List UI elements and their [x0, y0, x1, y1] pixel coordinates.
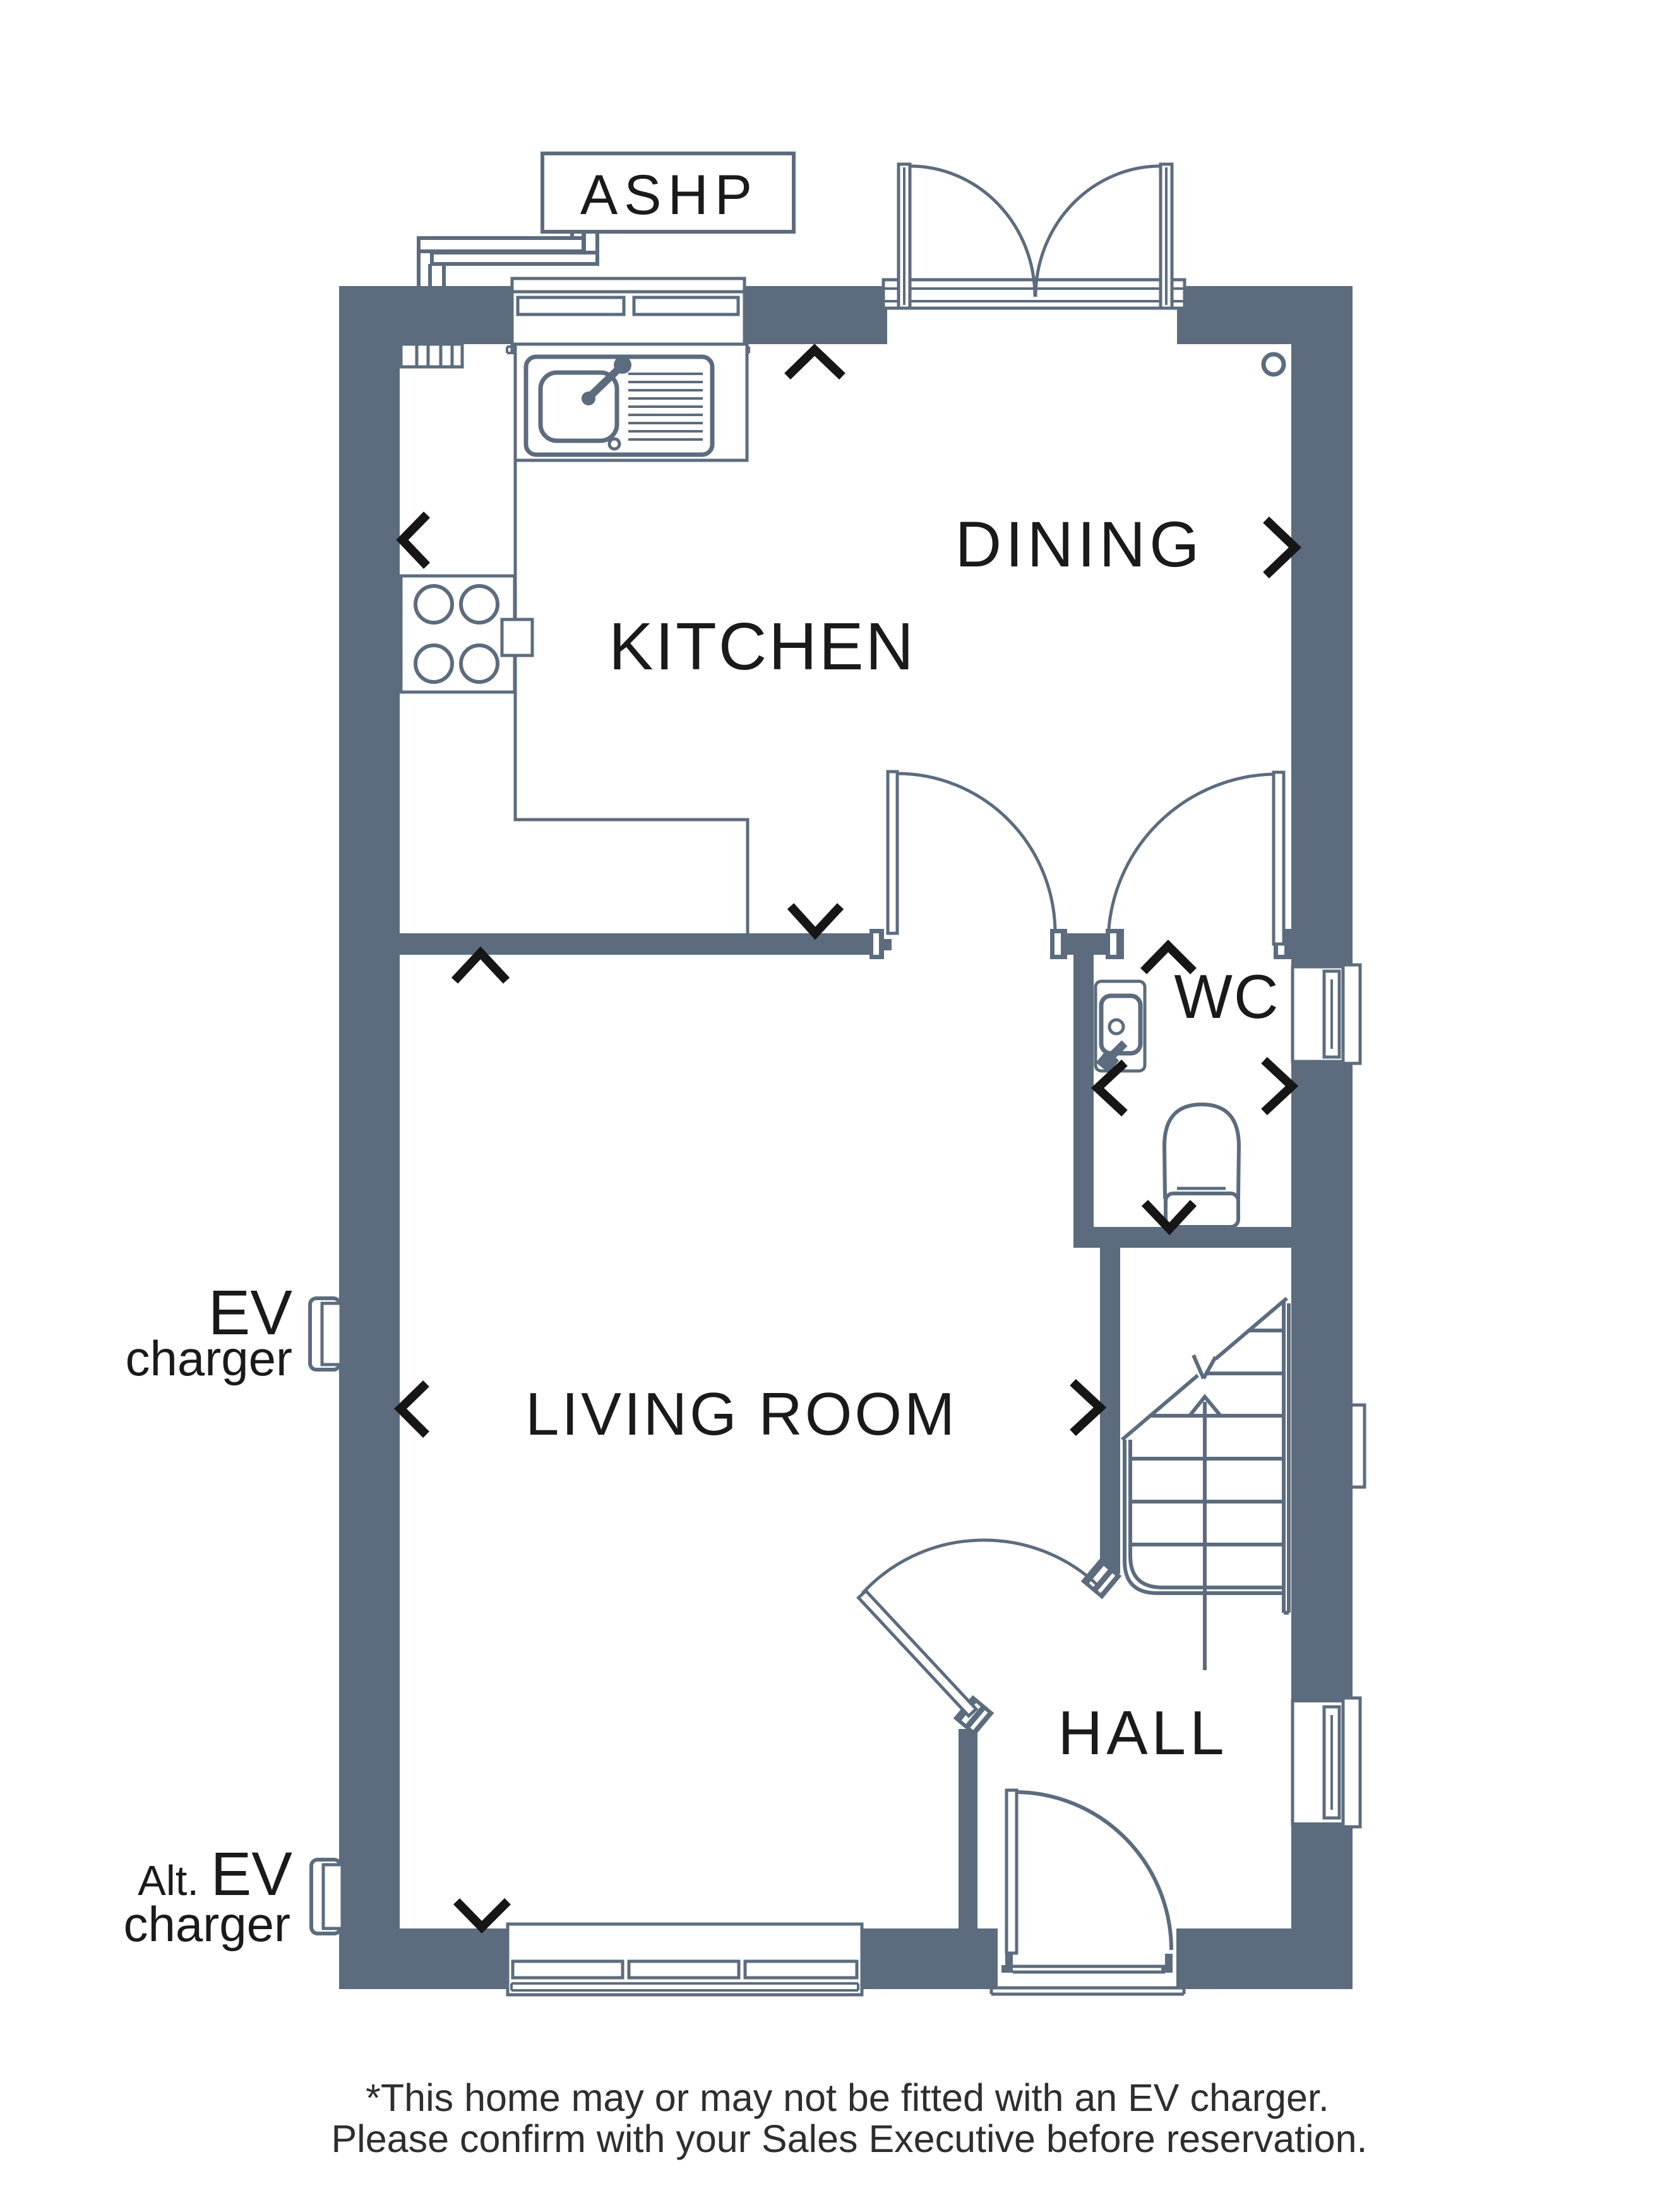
svg-text:ASHP: ASHP	[580, 163, 758, 226]
svg-text:LIVING ROOM: LIVING ROOM	[525, 1380, 957, 1448]
svg-text:DINING: DINING	[955, 508, 1204, 580]
svg-text:HALL: HALL	[1058, 1698, 1228, 1767]
svg-text:WC: WC	[1174, 962, 1279, 1031]
svg-text:*This home may or may not be f: *This home may or may not be fitted with…	[366, 2076, 1329, 2119]
svg-text:charger: charger	[124, 1896, 290, 1952]
svg-text:charger: charger	[126, 1330, 292, 1386]
svg-text:KITCHEN: KITCHEN	[609, 609, 916, 684]
svg-text:Please confirm with your Sales: Please confirm with your Sales Executive…	[332, 2117, 1368, 2160]
